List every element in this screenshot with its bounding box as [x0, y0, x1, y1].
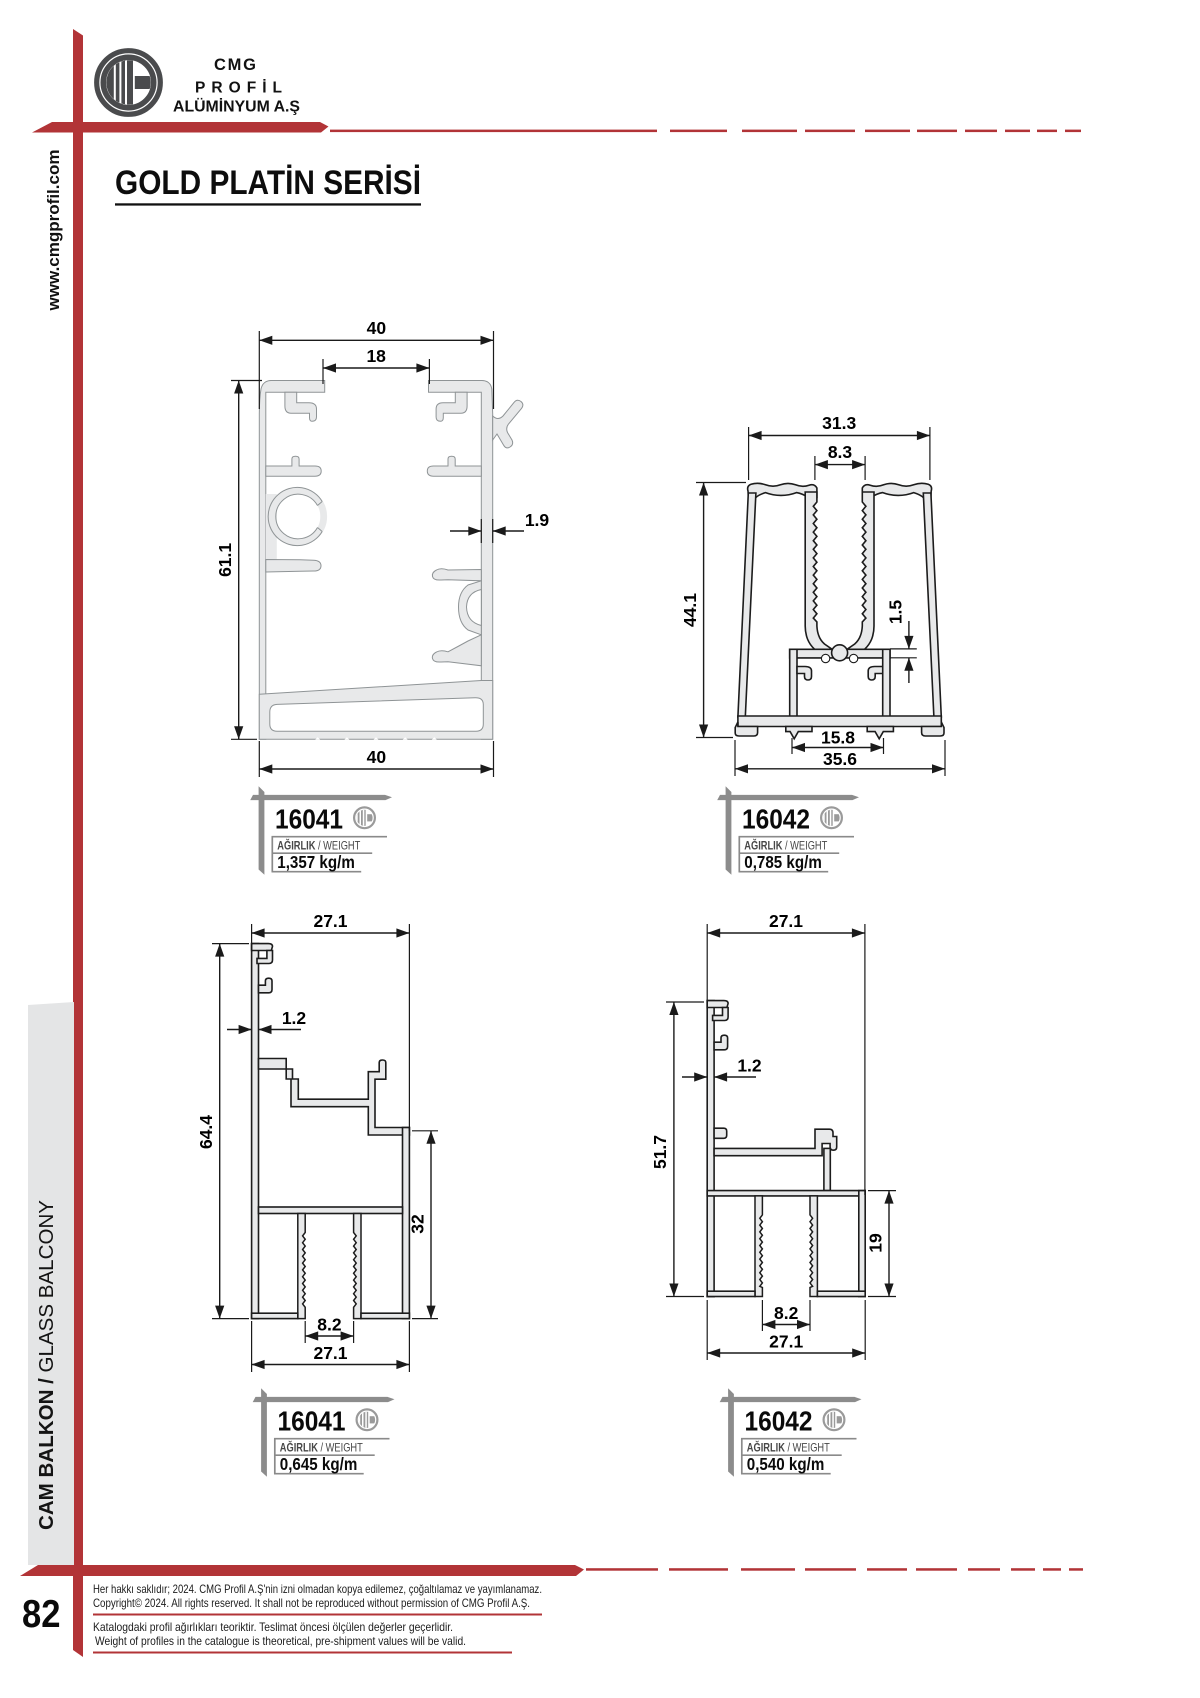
svg-text:31.3: 31.3	[822, 413, 856, 433]
svg-text:Katalogdaki profil ağırlıkları: Katalogdaki profil ağırlıkları teoriktir…	[93, 1621, 453, 1634]
svg-text:27.1: 27.1	[769, 911, 803, 931]
svg-text:35.6: 35.6	[823, 749, 857, 769]
svg-text:27.1: 27.1	[769, 1332, 803, 1352]
svg-text:19: 19	[866, 1233, 886, 1253]
svg-text:GOLD PLATİN SERİSİ: GOLD PLATİN SERİSİ	[115, 164, 421, 202]
svg-text:Weight of profiles in the cata: Weight of profiles in the catalogue is t…	[95, 1635, 466, 1648]
svg-text:61.1: 61.1	[215, 543, 235, 577]
svg-text:AĞIRLIK / WEIGHT: AĞIRLIK / WEIGHT	[277, 837, 360, 852]
svg-text:15.8: 15.8	[821, 728, 855, 748]
svg-text:AĞIRLIK / WEIGHT: AĞIRLIK / WEIGHT	[747, 1439, 830, 1454]
svg-text:51.7: 51.7	[650, 1135, 670, 1169]
svg-text:1.2: 1.2	[282, 1008, 307, 1028]
svg-text:1.2: 1.2	[737, 1056, 762, 1076]
svg-text:0,645 kg/m: 0,645 kg/m	[280, 1454, 358, 1474]
svg-text:1.9: 1.9	[525, 510, 550, 530]
svg-text:ALÜMİNYUM A.Ş: ALÜMİNYUM A.Ş	[173, 97, 300, 116]
svg-text:AĞIRLIK / WEIGHT: AĞIRLIK / WEIGHT	[744, 837, 827, 852]
svg-text:32: 32	[408, 1214, 428, 1234]
svg-text:27.1: 27.1	[313, 1343, 347, 1363]
svg-text:www.cmgprofil.com: www.cmgprofil.com	[44, 150, 63, 312]
svg-text:64.4: 64.4	[196, 1115, 216, 1149]
svg-text:0,540 kg/m: 0,540 kg/m	[747, 1454, 825, 1474]
svg-text:8.2: 8.2	[317, 1315, 342, 1335]
svg-text:Her hakkı saklıdır; 2024. CMG: Her hakkı saklıdır; 2024. CMG Profil A.Ş…	[93, 1583, 542, 1596]
svg-text:1.5: 1.5	[886, 600, 906, 625]
svg-text:1,357 kg/m: 1,357 kg/m	[277, 852, 355, 872]
svg-text:8.2: 8.2	[774, 1303, 799, 1323]
svg-text:Copyright© 2024. All rights re: Copyright© 2024. All rights reserved. It…	[93, 1597, 530, 1610]
svg-text:16042: 16042	[742, 804, 810, 835]
svg-text:CAM BALKON / GLASS BALCONY: CAM BALKON / GLASS BALCONY	[35, 1200, 58, 1530]
svg-text:16041: 16041	[275, 804, 343, 835]
svg-text:18: 18	[366, 346, 386, 366]
svg-text:82: 82	[22, 1593, 61, 1636]
svg-text:0,785 kg/m: 0,785 kg/m	[744, 852, 822, 872]
svg-text:8.3: 8.3	[828, 442, 853, 462]
svg-text:40: 40	[367, 747, 387, 767]
svg-text:27.1: 27.1	[313, 911, 347, 931]
svg-text:44.1: 44.1	[680, 593, 700, 627]
svg-text:16041: 16041	[278, 1406, 346, 1437]
svg-text:CMG: CMG	[214, 56, 260, 74]
svg-text:AĞIRLIK / WEIGHT: AĞIRLIK / WEIGHT	[280, 1439, 363, 1454]
svg-text:16042: 16042	[745, 1406, 813, 1437]
svg-text:40: 40	[367, 318, 387, 338]
